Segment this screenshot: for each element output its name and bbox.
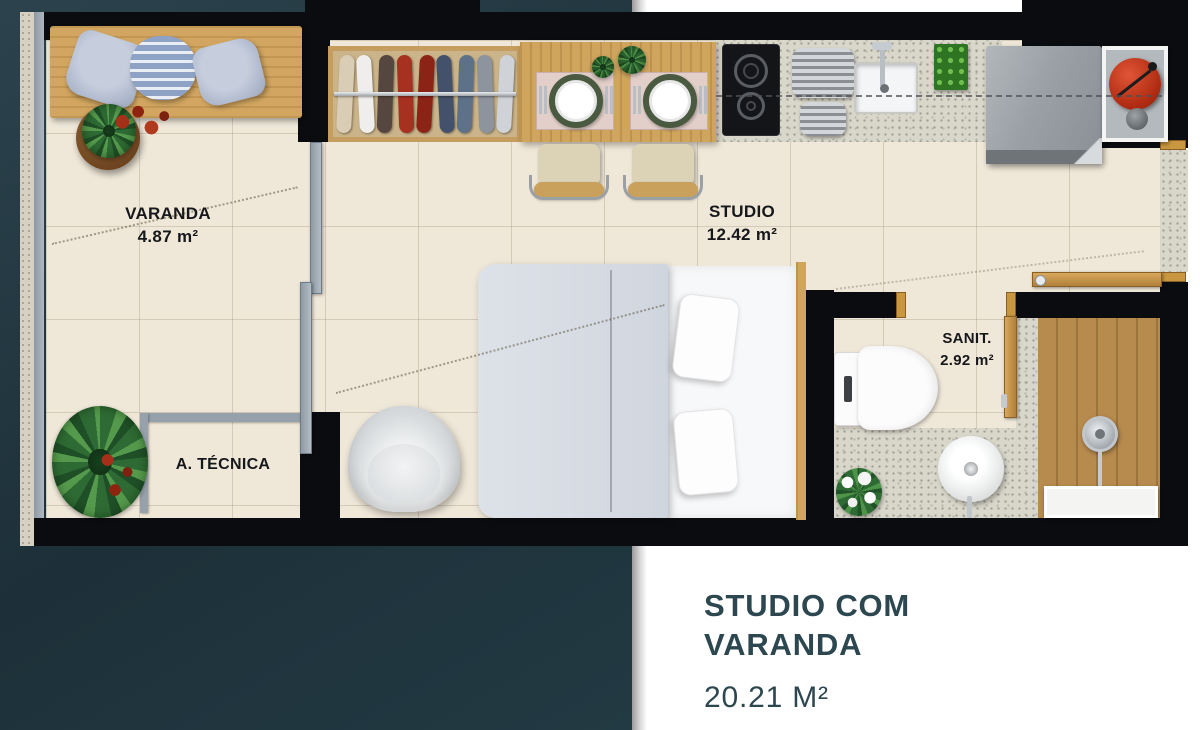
striped-cushion bbox=[130, 36, 196, 100]
sink-drain bbox=[880, 84, 889, 93]
duvet-crease bbox=[610, 270, 612, 512]
wall-top-closet bbox=[305, 0, 480, 40]
door-hinge bbox=[1035, 275, 1046, 286]
balcony-railing bbox=[20, 12, 34, 546]
balcony-sliding-door bbox=[310, 142, 322, 294]
cutlery bbox=[633, 86, 636, 114]
room-name: VARANDA bbox=[88, 202, 248, 225]
toilet-flush-button bbox=[844, 376, 852, 402]
balcony-sliding-door bbox=[300, 282, 312, 454]
room-label-varanda: VARANDA 4.87 m² bbox=[88, 202, 248, 248]
door-jamb bbox=[896, 292, 906, 318]
burner bbox=[734, 54, 768, 88]
wardrobe-rail bbox=[334, 92, 516, 96]
bed-headboard bbox=[796, 262, 806, 520]
unit-caption: STUDIO COM VARANDA 20.21 M² bbox=[704, 586, 1134, 715]
wall-right bbox=[1160, 282, 1188, 546]
room-name: SANIT. bbox=[902, 328, 1032, 350]
room-area: 12.42 m² bbox=[662, 223, 822, 246]
produce-crate bbox=[934, 44, 968, 90]
shower-head-center bbox=[1095, 429, 1105, 439]
shower-bench bbox=[1044, 486, 1158, 518]
refrigerator-corner-fold bbox=[1072, 138, 1102, 164]
table-plant bbox=[592, 56, 614, 78]
wall-top-kitchen bbox=[478, 12, 1024, 40]
table-plant bbox=[618, 46, 646, 74]
door-jamb bbox=[1006, 292, 1016, 318]
room-name: STUDIO bbox=[662, 200, 822, 223]
wall-bathroom-left bbox=[806, 290, 834, 518]
dinner-plate bbox=[643, 74, 697, 128]
washbasin-drain bbox=[964, 462, 978, 476]
bed-duvet bbox=[478, 264, 668, 518]
room-label-sanit: SANIT. 2.92 m² bbox=[902, 328, 1032, 372]
shower-pipe bbox=[1098, 450, 1102, 486]
cookware-knob bbox=[1148, 62, 1157, 71]
room-area: 2.92 m² bbox=[902, 350, 1032, 372]
cutlery bbox=[699, 86, 702, 114]
dish-rack bbox=[792, 48, 854, 98]
wall-balcony-divider-top bbox=[298, 12, 330, 142]
red-flowers bbox=[112, 102, 170, 146]
red-flowers bbox=[95, 445, 145, 505]
dinner-plate bbox=[549, 74, 603, 128]
floorplan-page: VARANDA 4.87 m² STUDIO 12.42 m² SANIT. 2… bbox=[0, 0, 1200, 730]
small-bowl bbox=[1126, 108, 1148, 130]
dining-chair bbox=[538, 144, 600, 186]
room-name: A. TÉCNICA bbox=[148, 456, 298, 474]
washbasin-faucet bbox=[967, 496, 972, 518]
caption-title-line1: STUDIO COM bbox=[704, 586, 1134, 625]
service-duct-wall bbox=[1160, 150, 1188, 272]
faucet bbox=[880, 46, 885, 86]
caption-total-area: 20.21 M² bbox=[704, 681, 1134, 715]
room-area: 4.87 m² bbox=[88, 225, 248, 248]
balcony-glass-railing bbox=[34, 12, 44, 546]
dining-chair bbox=[632, 144, 694, 186]
armchair-seat bbox=[368, 444, 440, 502]
bed-pillow-white bbox=[671, 293, 741, 384]
entry-door bbox=[1032, 272, 1162, 287]
room-label-studio: STUDIO 12.42 m² bbox=[662, 200, 822, 246]
cutlery bbox=[605, 86, 608, 114]
door-handle bbox=[1001, 394, 1007, 408]
faucet-head bbox=[872, 42, 892, 50]
wall-bathroom-top-right bbox=[1014, 292, 1162, 318]
wall-bottom bbox=[34, 518, 1188, 546]
bathroom-plant bbox=[836, 468, 882, 516]
tecnica-partition-top bbox=[140, 413, 305, 422]
cutlery bbox=[539, 86, 542, 114]
room-label-tecnica: A. TÉCNICA bbox=[148, 456, 298, 474]
dish-rack bbox=[800, 102, 846, 136]
caption-title-line2: VARANDA bbox=[704, 625, 1134, 664]
bed-pillow-white bbox=[672, 408, 739, 497]
wall-bathroom-top-left bbox=[806, 292, 900, 318]
section-dash-line bbox=[716, 95, 1162, 97]
door-jamb bbox=[1160, 272, 1186, 282]
